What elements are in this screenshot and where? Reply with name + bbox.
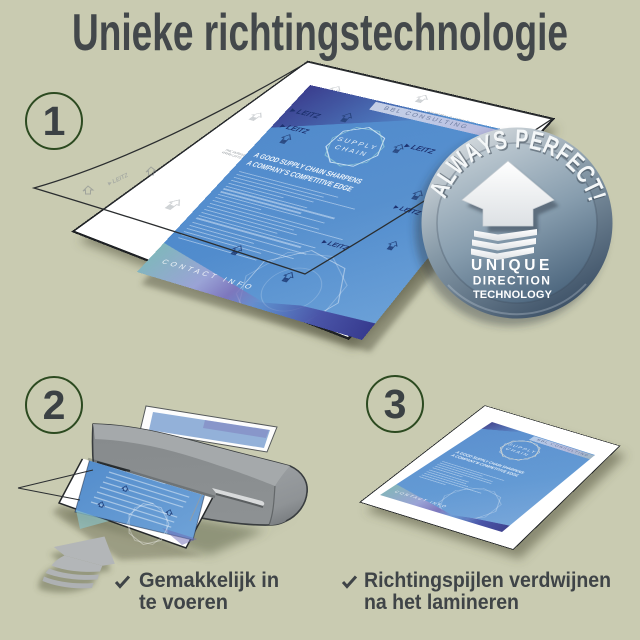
svg-text:DIRECTION: DIRECTION [473,274,552,288]
svg-text:P: P [514,124,529,154]
svg-text:UNIQUE: UNIQUE [471,257,553,274]
svg-text:TECHNOLOGY: TECHNOLOGY [473,289,553,301]
